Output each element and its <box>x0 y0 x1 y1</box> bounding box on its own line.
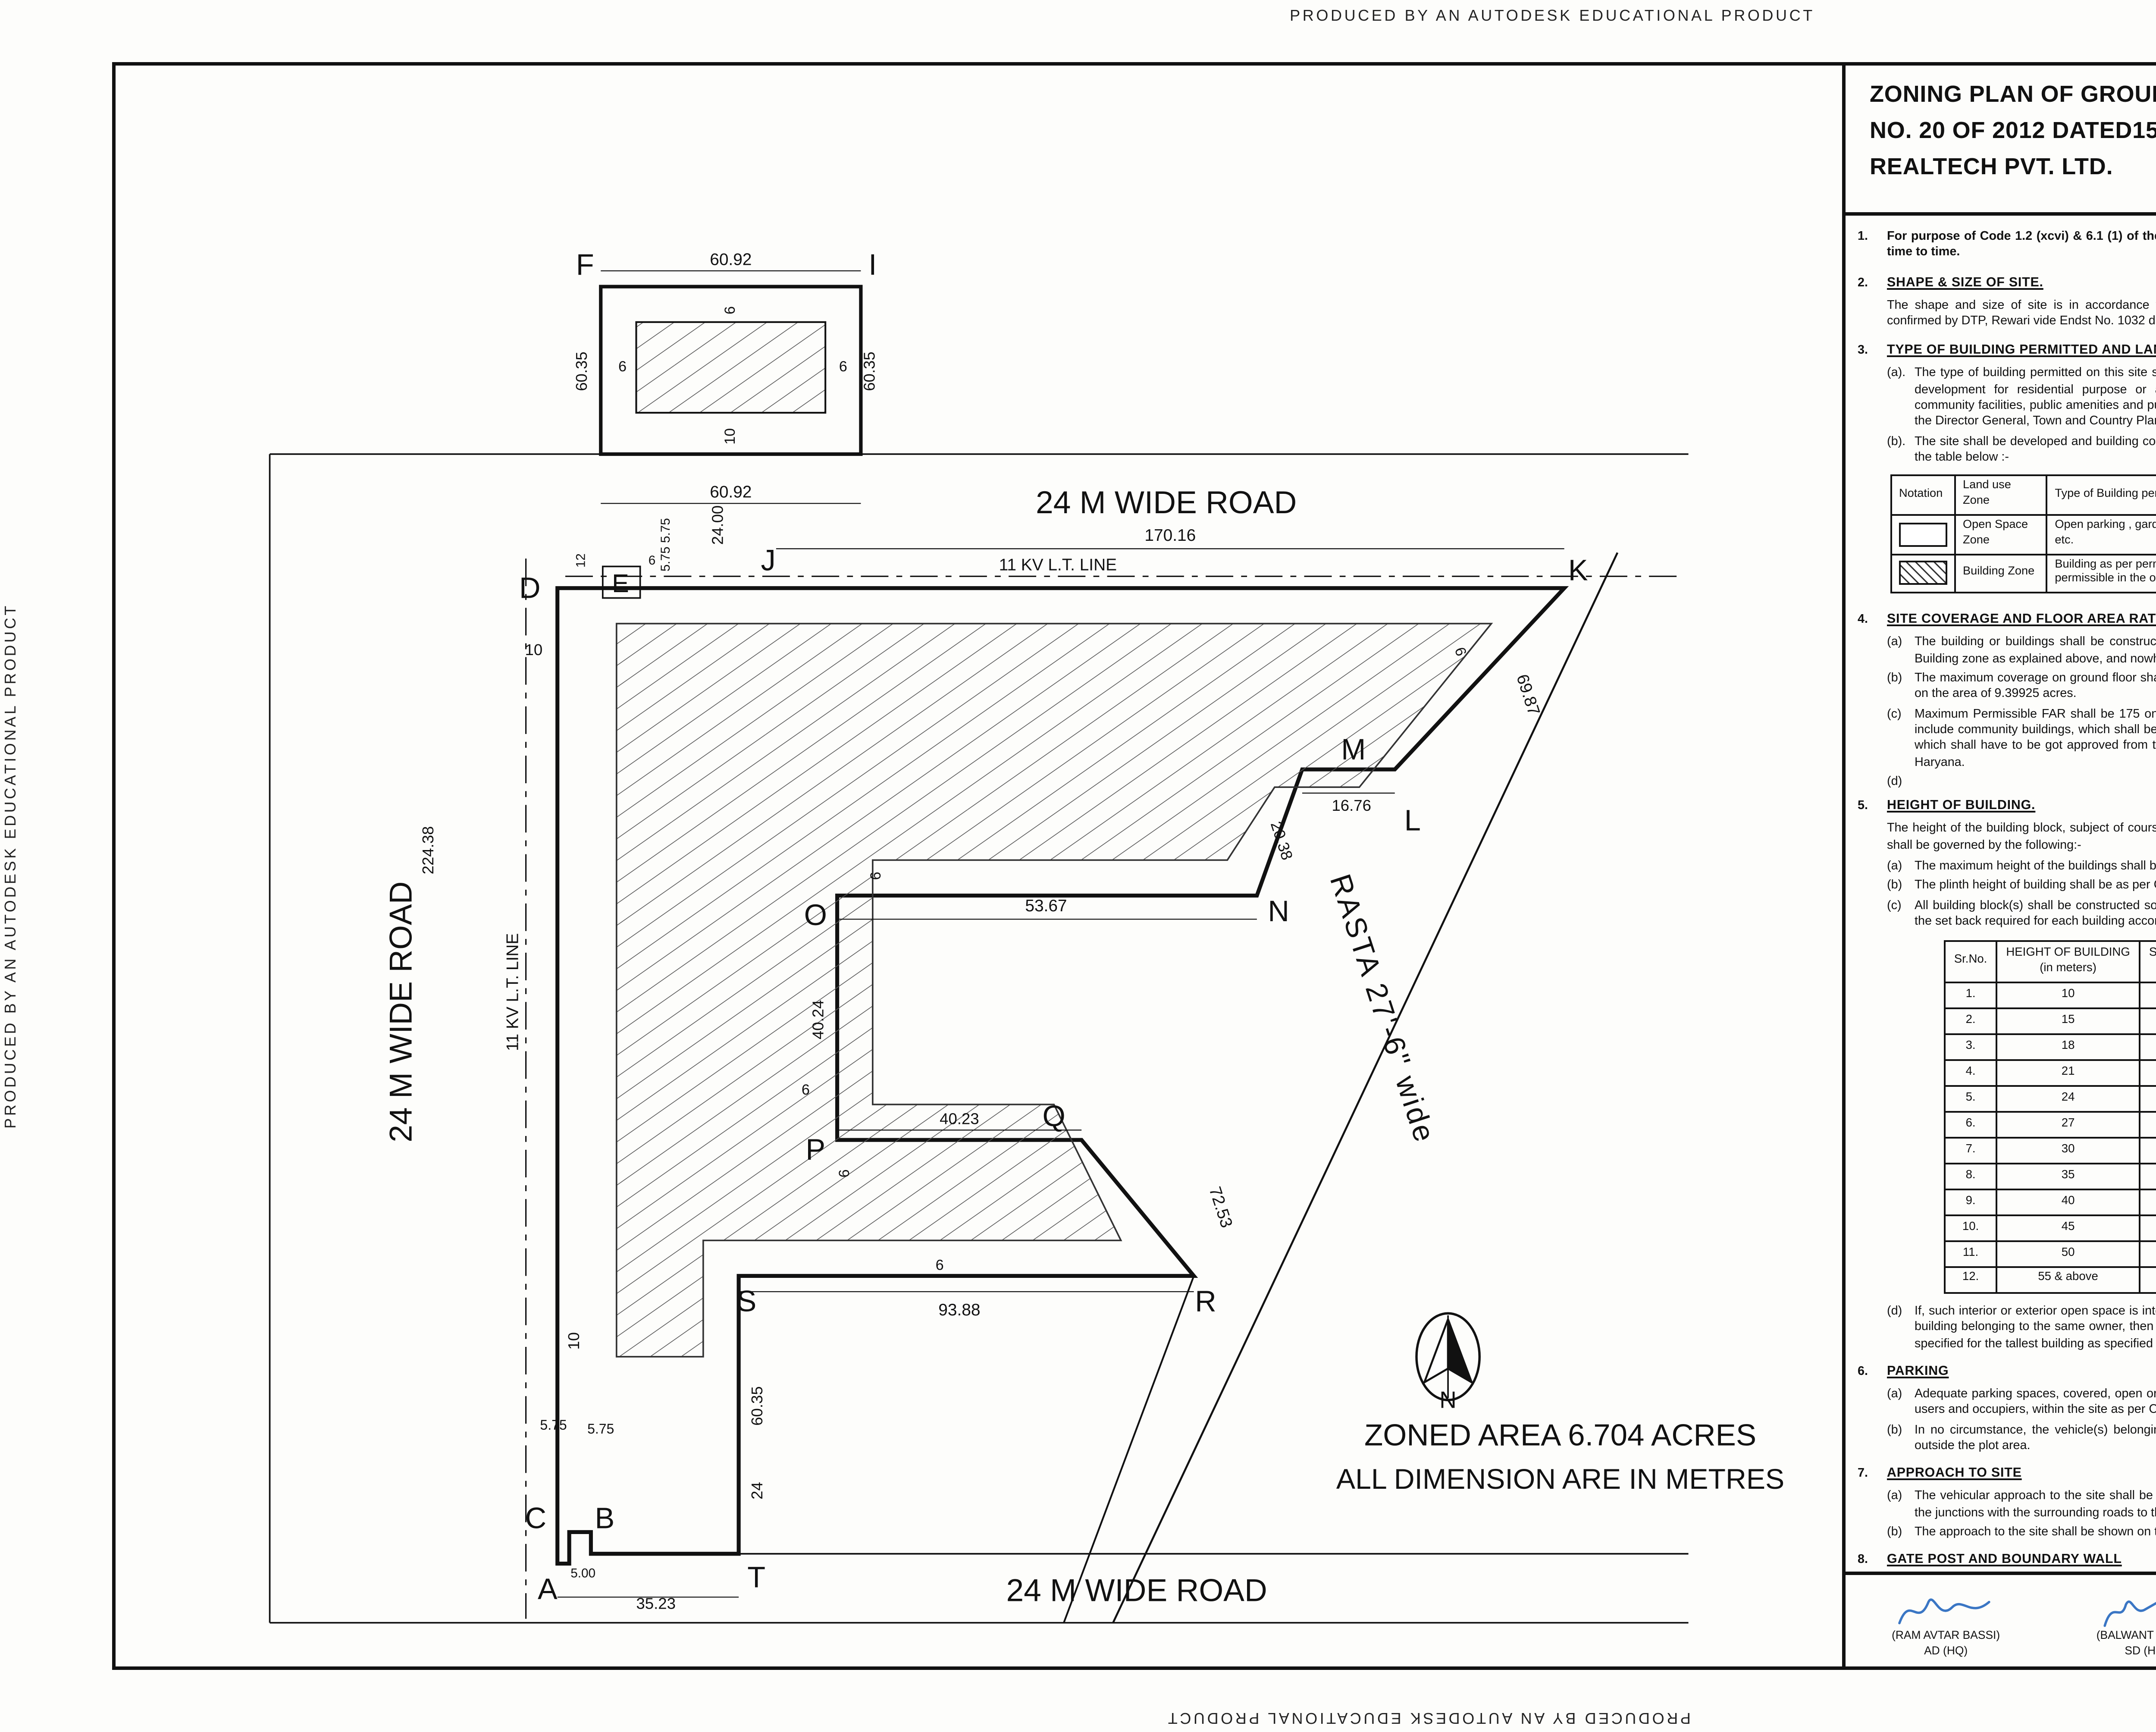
note-subitem: (b)In no circumstance, the vehicle(s) be… <box>1887 1421 2156 1456</box>
note-heading: SITE COVERAGE AND FLOOR AREA RATIO (FAR) <box>1887 611 2156 628</box>
dim-label: 6 <box>722 306 738 314</box>
vertex-label-Q: Q <box>1043 1099 1065 1133</box>
table-cell: 35 <box>1996 1164 2139 1189</box>
note-heading: HEIGHT OF BUILDING. <box>1887 798 2156 815</box>
dim-label: 60.35 <box>748 1386 766 1425</box>
table-cell: 14 <box>2140 1241 2156 1267</box>
table-cell: 8 <box>2140 1086 2156 1112</box>
vertex-label-M: M <box>1341 733 1366 766</box>
note-heading: SHAPE & SIZE OF SITE. <box>1887 274 2156 291</box>
table-cell: 10 <box>2140 1138 2156 1164</box>
road-label-top: 24 M WIDE ROAD <box>1036 485 1297 520</box>
kv-line-top-label: 11 KV L.T. LINE <box>999 556 1117 574</box>
note-subitem: (a)The maximum height of the buildings s… <box>1887 857 2156 877</box>
table-cell: 12. <box>1945 1267 1997 1293</box>
note-number: 7. <box>1858 1465 1887 1543</box>
dim-label: 24 <box>748 1482 766 1500</box>
table-cell: 3. <box>1945 1035 1997 1061</box>
open-space-swatch <box>1899 522 1947 546</box>
note-number: 8. <box>1858 1551 1887 1572</box>
dim-label: 53.67 <box>1025 897 1067 915</box>
signatory-role: SD (HQ) <box>2046 1645 2156 1661</box>
note-paragraph: For purpose of Code 1.2 (xcvi) & 6.1 (1)… <box>1887 228 2156 260</box>
table-row: 5.248 <box>1945 1086 2156 1112</box>
note-body: HEIGHT OF BUILDING.The height of the bui… <box>1887 798 2156 1355</box>
note-number: 3. <box>1858 342 1887 602</box>
note-item: 8.GATE POST AND BOUNDARY WALL(a)Such Bou… <box>1858 1551 2156 1572</box>
subitem-label: (c) <box>1887 897 1915 932</box>
note-paragraph: The height of the building block, subjec… <box>1887 820 2156 852</box>
road-label-rasta: RASTA 27'-6" wide <box>1324 870 1442 1147</box>
note-subitem: (d)If, such interior or exterior open sp… <box>1887 1302 2156 1354</box>
table-row: 10.4513 <box>1945 1215 2156 1241</box>
autodesk-banner-left: PRODUCED BY AN AUTODESK EDUCATIONAL PROD… <box>2 603 19 1129</box>
note-subitem: (a)The building or buildings shall be co… <box>1887 634 2156 669</box>
dim-label: 60.92 <box>710 250 752 269</box>
dim-label: 6 <box>649 553 656 568</box>
dim-label: 6 <box>618 358 627 375</box>
dim-label: 6 <box>839 358 847 375</box>
note-item: 3.TYPE OF BUILDING PERMITTED AND LAND US… <box>1858 342 2156 602</box>
note-body: APPROACH TO SITE(a)The vehicular approac… <box>1887 1465 2156 1543</box>
note-body: For purpose of Code 1.2 (xcvi) & 6.1 (1)… <box>1887 228 2156 265</box>
dim-label: 24.00 <box>709 505 727 545</box>
kv-line-left-label: 11 KV L.T. LINE <box>503 933 522 1051</box>
rasta-west-edge-lower <box>1064 1276 1194 1622</box>
subitem-text: In no circumstance, the vehicle(s) belon… <box>1915 1421 2156 1453</box>
dim-label: 5.75 <box>540 1417 567 1433</box>
notation-cell <box>1891 515 1955 554</box>
zone-cell: Open Space Zone <box>1955 515 2047 554</box>
zone-cell: Building Zone <box>1955 554 2047 593</box>
title-block: ZONING PLAN OF GROUP HOUSING COLONY FOR … <box>1842 62 2156 1670</box>
table-cell: 16 <box>2140 1267 2156 1293</box>
note-heading: GATE POST AND BOUNDARY WALL <box>1887 1551 2156 1568</box>
table-header-cell: Type of Building permitted / permissible… <box>2047 476 2156 515</box>
table-cell: 3 <box>2140 983 2156 1009</box>
table-cell: 10. <box>1945 1215 1997 1241</box>
note-item: 4.SITE COVERAGE AND FLOOR AREA RATIO (FA… <box>1858 611 2156 789</box>
vertex-label-L: L <box>1404 804 1421 837</box>
table-row: 12.55 & above16 <box>1945 1267 2156 1293</box>
dim-label: 10 <box>525 641 543 659</box>
zoned-area-line2: ALL DIMENSION ARE IN METRES <box>1336 1463 1784 1495</box>
table-cell: 1. <box>1945 983 1997 1009</box>
subitem-text: The plinth height of building shall be a… <box>1915 877 2156 893</box>
table-header-cell: SET BACK / OPEN SPACE TO BE LEFT AROUND … <box>2140 942 2156 983</box>
note-item: 6.PARKING(a)Adequate parking spaces, cov… <box>1858 1363 2156 1456</box>
dim-label: 35.23 <box>636 1595 675 1613</box>
north-arrow: N <box>1416 1313 1479 1413</box>
table-header-row: NotationLand use ZoneType of Building pe… <box>1891 476 2156 515</box>
type-cell: Open parking , garden , landscaping feat… <box>2047 515 2156 554</box>
note-item: 7.APPROACH TO SITE(a)The vehicular appro… <box>1858 1465 2156 1543</box>
table-row: 9.4012 <box>1945 1189 2156 1215</box>
subitem-text: All building block(s) shall be construct… <box>1915 897 2156 929</box>
note-number: 5. <box>1858 798 1887 1355</box>
dim-label: 5.00 <box>570 1566 595 1581</box>
note-subitem: (a).The type of building permitted on th… <box>1887 364 2156 433</box>
table-cell: 18 <box>1996 1035 2139 1061</box>
table-row: 6.279 <box>1945 1112 2156 1138</box>
subitem-label: (a) <box>1887 1487 1915 1523</box>
table-row: 4.217 <box>1945 1061 2156 1086</box>
table-row: Open Space ZoneOpen parking , garden , l… <box>1891 515 2156 554</box>
dim-label: 224.38 <box>419 826 437 875</box>
dim-label: 10 <box>722 428 738 445</box>
dim-label: 12 <box>574 553 588 568</box>
site-plan-drawing: N 24 M WIDE ROAD 24 M WIDE ROAD 24 M WID… <box>112 62 1842 1670</box>
table-header-row: Sr.No.HEIGHT OF BUILDING (in meters)SET … <box>1945 942 2156 983</box>
subitem-label: (c) <box>1887 705 1915 773</box>
signatory-name: (RAM AVTAR BASSI) <box>1846 1628 2046 1645</box>
vertex-label-R: R <box>1195 1285 1216 1318</box>
table-row: 7.3010 <box>1945 1138 2156 1164</box>
table-cell: 30 <box>1996 1138 2139 1164</box>
note-number: 1. <box>1858 228 1887 265</box>
subitem-label: (b) <box>1887 1421 1915 1456</box>
table-cell: 40 <box>1996 1189 2139 1215</box>
dim-label: 6 <box>936 1257 944 1274</box>
subitem-text: Adequate parking spaces, covered, open o… <box>1915 1385 2156 1418</box>
note-body: PARKING(a)Adequate parking spaces, cover… <box>1887 1363 2156 1456</box>
subitem-label: (a) <box>1887 857 1915 877</box>
note-subitem: (c)All building block(s) shall be constr… <box>1887 897 2156 932</box>
road-label-bottom: 24 M WIDE ROAD <box>1006 1573 1267 1608</box>
note-item: 5.HEIGHT OF BUILDING.The height of the b… <box>1858 798 2156 1355</box>
note-item: 2.SHAPE & SIZE OF SITE.The shape and siz… <box>1858 274 2156 333</box>
table-cell: 55 & above <box>1996 1267 2139 1293</box>
vertex-label-O: O <box>804 898 827 932</box>
vertex-label-S: S <box>737 1285 757 1318</box>
table-cell: 45 <box>1996 1215 2139 1241</box>
vertex-label-I: I <box>868 248 877 281</box>
table-cell: 13 <box>2140 1215 2156 1241</box>
table-header-cell: HEIGHT OF BUILDING (in meters) <box>1996 942 2139 983</box>
note-paragraph: The shape and size of site is in accorda… <box>1887 296 2156 328</box>
signature-strip: (RAM AVTAR BASSI)AD (HQ)(BALWANT SINGH)S… <box>1846 1572 2156 1670</box>
vertex-label-P: P <box>805 1133 825 1166</box>
table-cell: 9. <box>1945 1189 1997 1215</box>
table-cell: 7 <box>2140 1061 2156 1086</box>
note-heading: APPROACH TO SITE <box>1887 1465 2156 1482</box>
subitem-label: (b) <box>1887 877 1915 896</box>
table-cell: 11 <box>2140 1164 2156 1189</box>
table-cell: 10 <box>1996 983 2139 1009</box>
dim-label: 60.35 <box>860 351 878 391</box>
subitem-text <box>1915 773 2156 785</box>
table-cell: 2. <box>1945 1009 1997 1035</box>
north-label: N <box>1439 1387 1457 1413</box>
drawing-sheet: PRODUCED BY AN AUTODESK EDUCATIONAL PROD… <box>0 0 2156 1732</box>
top-building-zone-hatch <box>636 322 825 413</box>
note-subitem: (b).The site shall be developed and buil… <box>1887 432 2156 468</box>
table-cell: 15 <box>1996 1009 2139 1035</box>
road-label-left: 24 M WIDE ROAD <box>384 882 419 1142</box>
dim-label: 60.35 <box>573 351 590 391</box>
subitem-text: The vehicular approach to the site shall… <box>1915 1487 2156 1520</box>
notes-column-left: 1.For purpose of Code 1.2 (xcvi) & 6.1 (… <box>1846 216 2156 1572</box>
table-cell: 27 <box>1996 1112 2139 1138</box>
subitem-text: The maximum coverage on ground floor sha… <box>1915 669 2156 701</box>
height-setback-table: Sr.No.HEIGHT OF BUILDING (in meters)SET … <box>1944 941 2156 1294</box>
table-row: 2.155 <box>1945 1009 2156 1035</box>
subitem-text: The maximum height of the buildings shal… <box>1915 857 2156 873</box>
table-cell: 12 <box>2140 1189 2156 1215</box>
note-heading: PARKING <box>1887 1363 2156 1380</box>
dim-label: 6 <box>802 1082 810 1098</box>
note-body: SHAPE & SIZE OF SITE.The shape and size … <box>1887 274 2156 333</box>
table-cell: 6 <box>2140 1035 2156 1061</box>
table-cell: 4. <box>1945 1061 1997 1086</box>
subitem-text: The site shall be developed and building… <box>1915 432 2156 464</box>
vertex-label-C: C <box>525 1501 547 1534</box>
note-subitem: (a)Adequate parking spaces, covered, ope… <box>1887 1385 2156 1421</box>
subitem-text: The type of building permitted on this s… <box>1915 364 2156 429</box>
note-subitem: (b)The plinth height of building shall b… <box>1887 877 2156 896</box>
note-body: GATE POST AND BOUNDARY WALL(a)Such Bound… <box>1887 1551 2156 1572</box>
subitem-label: (a) <box>1887 634 1915 669</box>
autodesk-banner-top: PRODUCED BY AN AUTODESK EDUCATIONAL PROD… <box>1290 7 1815 24</box>
building-zone-swatch <box>1899 562 1947 586</box>
dim-label: 60.92 <box>710 483 752 502</box>
table-header-cell: Notation <box>1891 476 1955 515</box>
note-subitem: (a)The vehicular approach to the site sh… <box>1887 1487 2156 1523</box>
vertex-label-E: E <box>612 569 629 598</box>
notation-cell <box>1891 554 1955 593</box>
dim-label: 170.16 <box>1144 526 1196 545</box>
table-cell: 7. <box>1945 1138 1997 1164</box>
dim-label: 6 <box>868 872 884 880</box>
subitem-label: (b). <box>1887 432 1915 468</box>
table-row: 11.5014 <box>1945 1241 2156 1267</box>
note-body: SITE COVERAGE AND FLOOR AREA RATIO (FAR)… <box>1887 611 2156 789</box>
subitem-text: The building or buildings shall be const… <box>1915 634 2156 666</box>
table-header-cell: Land use Zone <box>1955 476 2047 515</box>
zoned-area-line1: ZONED AREA 6.704 ACRES <box>1364 1418 1756 1452</box>
signatory-name: (BALWANT SINGH) <box>2046 1628 2156 1645</box>
note-item: 1.For purpose of Code 1.2 (xcvi) & 6.1 (… <box>1858 228 2156 265</box>
vertex-label-N: N <box>1268 894 1289 928</box>
dim-label: 10 <box>565 1332 583 1350</box>
vertex-label-B: B <box>595 1501 615 1534</box>
notes-panel: 1.For purpose of Code 1.2 (xcvi) & 6.1 (… <box>1846 216 2156 1572</box>
note-subitem: (d) <box>1887 773 2156 789</box>
subitem-label: (b) <box>1887 669 1915 705</box>
dim-label: 16.76 <box>1332 797 1371 814</box>
signature-mark <box>1874 1589 2018 1634</box>
table-cell: 5. <box>1945 1086 1997 1112</box>
table-cell: 50 <box>1996 1241 2139 1267</box>
dim-label: 5.75 5.75 <box>658 518 673 571</box>
note-number: 6. <box>1858 1363 1887 1456</box>
subitem-label: (a). <box>1887 364 1915 433</box>
note-subitem: (b)The approach to the site shall be sho… <box>1887 1523 2156 1543</box>
landuse-table: NotationLand use ZoneType of Building pe… <box>1890 475 2156 594</box>
signature-block: (BALWANT SINGH)SD (HQ) <box>2046 1589 2156 1661</box>
type-cell: Building as per permissible land use in … <box>2047 554 2156 593</box>
dim-label: 6 <box>836 1169 852 1177</box>
vertex-label-J: J <box>761 544 776 577</box>
vertex-label-A: A <box>538 1572 558 1606</box>
table-cell: 24 <box>1996 1086 2139 1112</box>
subitem-text: Maximum Permissible FAR shall be 175 on … <box>1915 705 2156 769</box>
table-cell: 11. <box>1945 1241 1997 1267</box>
table-cell: 5 <box>2140 1009 2156 1035</box>
vertex-label-F: F <box>576 248 594 281</box>
vertex-label-T: T <box>747 1560 765 1594</box>
dim-label: 72.53 <box>1205 1184 1236 1230</box>
subitem-text: The approach to the site shall be shown … <box>1915 1523 2156 1539</box>
table-row: 3.186 <box>1945 1035 2156 1061</box>
autodesk-banner-bottom: PRODUCED BY AN AUTODESK EDUCATIONAL PROD… <box>1166 1710 1691 1727</box>
dim-label: 40.23 <box>940 1110 979 1128</box>
signatory-role: AD (HQ) <box>1846 1645 2046 1661</box>
signature-mark <box>2074 1589 2156 1634</box>
note-number: 2. <box>1858 274 1887 333</box>
dim-label: 69.87 <box>1513 672 1543 718</box>
table-cell: 9 <box>2140 1112 2156 1138</box>
note-subitem: (b)The maximum coverage on ground floor … <box>1887 669 2156 705</box>
note-number: 4. <box>1858 611 1887 789</box>
subitem-label: (b) <box>1887 1523 1915 1543</box>
drawing-title: ZONING PLAN OF GROUP HOUSING COLONY FOR … <box>1846 62 2156 216</box>
vertex-label-K: K <box>1568 553 1588 587</box>
note-heading: TYPE OF BUILDING PERMITTED AND LAND USES… <box>1887 342 2156 359</box>
vertex-label-D: D <box>519 571 541 605</box>
dim-label: 93.88 <box>938 1301 980 1319</box>
subitem-label: (d) <box>1887 1302 1915 1354</box>
subitem-label: (a) <box>1887 1385 1915 1421</box>
table-cell: 6. <box>1945 1112 1997 1138</box>
subitem-label: (d) <box>1887 773 1915 789</box>
dim-label: 5.75 <box>587 1421 614 1437</box>
dim-label: 40.24 <box>809 1000 827 1039</box>
note-subitem: (c)Maximum Permissible FAR shall be 175 … <box>1887 705 2156 773</box>
note-body: TYPE OF BUILDING PERMITTED AND LAND USES… <box>1887 342 2156 602</box>
table-row: Building ZoneBuilding as per permissible… <box>1891 554 2156 593</box>
table-row: 8.3511 <box>1945 1164 2156 1189</box>
table-cell: 8. <box>1945 1164 1997 1189</box>
table-header-cell: Sr.No. <box>1945 942 1997 983</box>
subitem-text: If, such interior or exterior open space… <box>1915 1302 2156 1351</box>
table-cell: 21 <box>1996 1061 2139 1086</box>
table-row: 1.103 <box>1945 983 2156 1009</box>
signature-block: (RAM AVTAR BASSI)AD (HQ) <box>1846 1589 2046 1661</box>
